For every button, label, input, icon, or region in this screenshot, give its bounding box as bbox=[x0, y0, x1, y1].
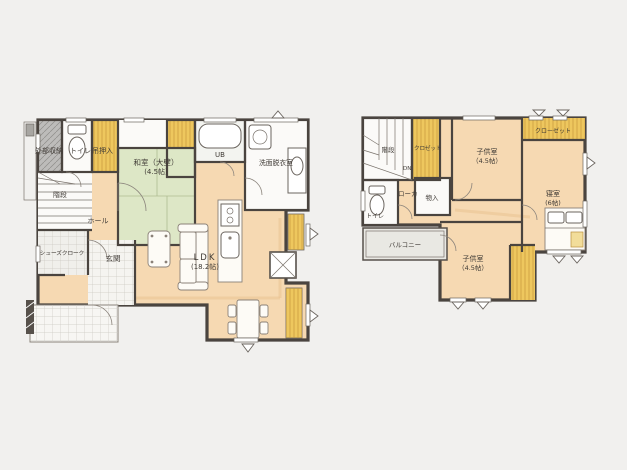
label-toilet-2f: トイレ bbox=[366, 213, 384, 220]
label-kids-a-size: （4.5帖） bbox=[472, 156, 502, 165]
label-bedroom-size: (6帖) bbox=[545, 198, 561, 207]
bay-box bbox=[270, 252, 296, 278]
label-shoes-closet: シューズクローク bbox=[40, 249, 84, 257]
label-corridor: ローカ bbox=[398, 190, 418, 198]
bathtub bbox=[199, 124, 241, 148]
label-ext-storage: 外部収納 bbox=[35, 146, 63, 155]
label-closet-main: クローゼット bbox=[535, 127, 571, 135]
label-ldk: LDK bbox=[194, 253, 217, 263]
label-kids-b-size: （4.5帖） bbox=[458, 263, 488, 272]
label-balcony: バルコニー bbox=[389, 241, 421, 249]
washer-pan bbox=[249, 125, 271, 149]
toilet-fixture-2f bbox=[369, 186, 385, 215]
label-stairs-1f: 階段 bbox=[53, 190, 67, 199]
coffee-table bbox=[148, 231, 170, 267]
label-closet-stairs: クロゼット bbox=[414, 144, 442, 152]
label-hanging-closet: 吊押入 bbox=[92, 146, 113, 155]
label-washitsu-size: (4.5帖) bbox=[144, 167, 168, 176]
label-storage: 物入 bbox=[426, 193, 440, 202]
label-dn: DN bbox=[403, 166, 411, 172]
label-kids-a: 子供室 bbox=[477, 147, 498, 156]
plan-2f-shapes bbox=[361, 110, 595, 309]
label-washitsu: 和室（大壁） bbox=[134, 157, 179, 167]
label-ub: UB bbox=[215, 151, 225, 159]
label-washroom: 洗面脱衣室 bbox=[259, 158, 293, 167]
label-entrance: 玄関 bbox=[106, 253, 121, 263]
kitchen-counter bbox=[218, 200, 242, 282]
floorplan-2f: 階段 DN クロゼット トイレ ローカ 物入 子供室 （4.5帖） クローゼット… bbox=[355, 105, 600, 320]
label-stairs-2f: 階段 bbox=[382, 145, 396, 154]
room-stairs-1f bbox=[38, 172, 92, 230]
label-bedroom: 寝室 bbox=[546, 189, 560, 198]
label-kids-b: 子供室 bbox=[463, 254, 484, 263]
label-hall: ホール bbox=[88, 217, 109, 225]
plan-1f-shapes bbox=[24, 111, 318, 352]
label-toilet-1f: トイレ bbox=[70, 147, 91, 155]
label-ldk-size: (18.2帖) bbox=[191, 262, 219, 271]
bed bbox=[545, 208, 585, 250]
floorplan-image: 外部収納 トイレ 吊押入 和室（大壁） (4.5帖) UB 洗面脱衣室 階段 ホ… bbox=[0, 0, 627, 470]
floorplan-1f: 外部収納 トイレ 吊押入 和室（大壁） (4.5帖) UB 洗面脱衣室 階段 ホ… bbox=[20, 108, 320, 358]
